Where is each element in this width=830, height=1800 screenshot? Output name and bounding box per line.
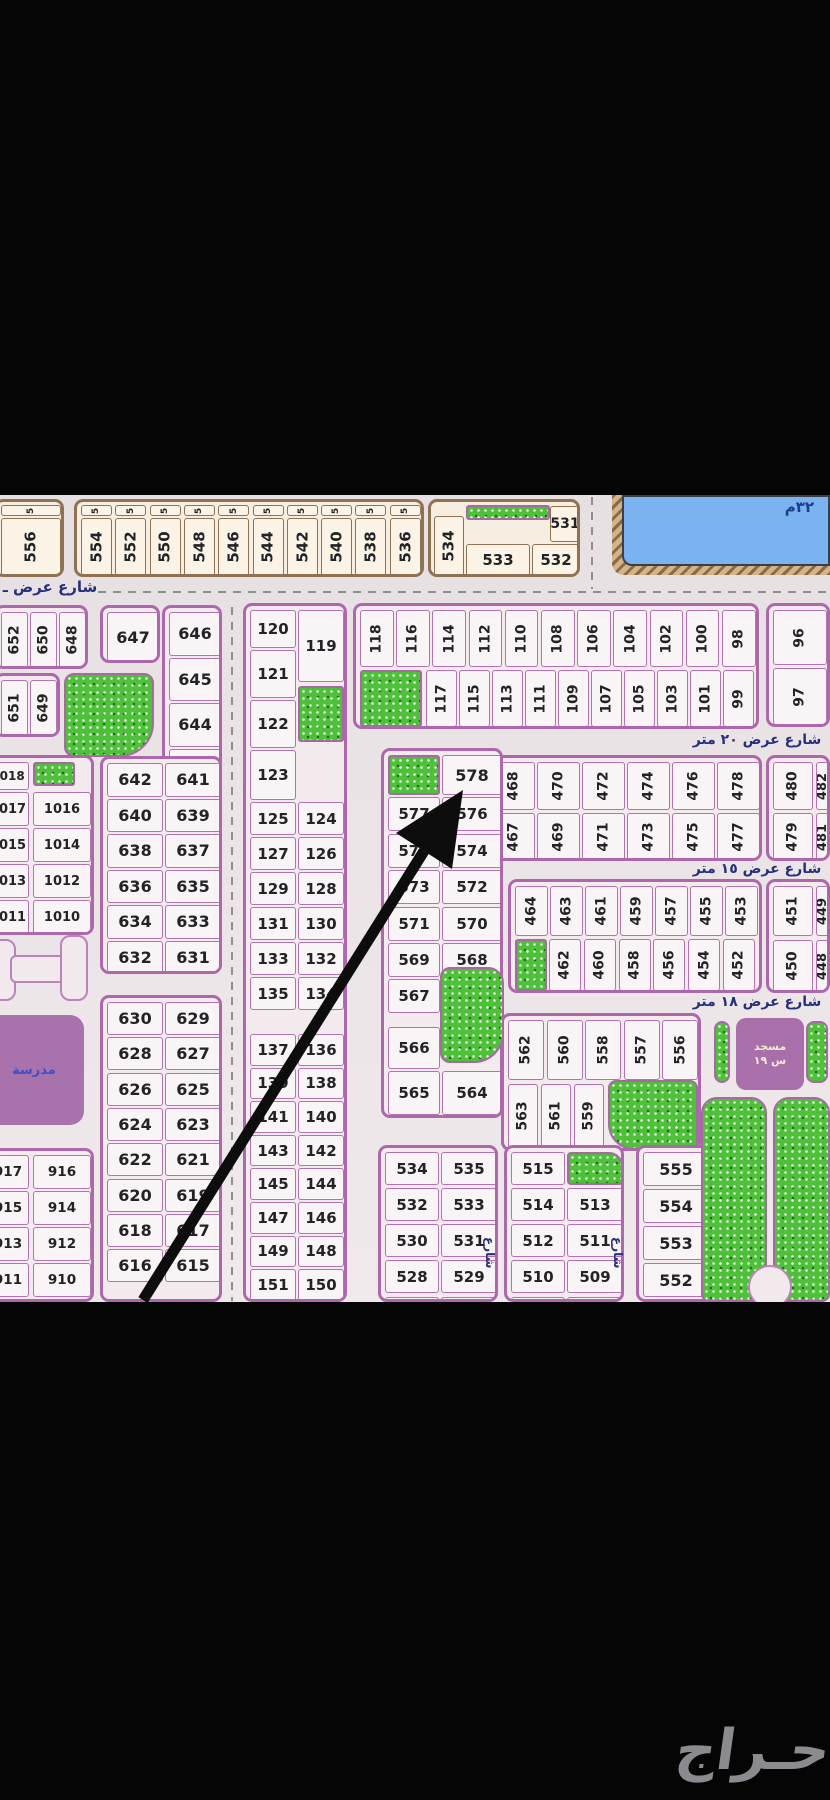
plot-129: 129 (250, 872, 296, 905)
plot-127: 127 (250, 837, 296, 870)
plot-536: 536 (390, 518, 421, 576)
plot-550: 550 (150, 518, 181, 576)
plot-112: 112 (469, 610, 503, 667)
block-1010-1018: 101810171016101510141013101210111010 (0, 755, 94, 935)
plot-99: 99 (723, 670, 754, 727)
block-615-630: 6306296286276266256246236226216206196186… (100, 995, 222, 1302)
plot-5: 5 (150, 505, 181, 516)
plot-cell (441, 1297, 497, 1302)
plot-515: 515 (511, 1152, 565, 1185)
plot-455: 455 (690, 886, 723, 936)
block-556-top: 5556 (0, 499, 64, 577)
plot-531: 531 (550, 506, 580, 542)
block-647: 647 (100, 605, 160, 663)
plot-642: 642 (107, 763, 163, 797)
plot-148: 148 (298, 1236, 344, 1268)
plot-136: 136 (298, 1034, 344, 1066)
plot-147: 147 (250, 1202, 296, 1234)
plot-560: 560 (547, 1020, 583, 1080)
plot-111: 111 (525, 670, 556, 727)
street-label-20m: شارع عرض ٢٠ متر (686, 732, 828, 748)
plot-555: 555 (643, 1152, 709, 1186)
plot-623: 623 (165, 1108, 221, 1141)
plot-116: 116 (396, 610, 430, 667)
plot-558: 558 (585, 1020, 621, 1080)
street-label-18m: شارع عرض ١٨ متر (686, 994, 828, 1010)
plot-632: 632 (107, 941, 163, 975)
plot-645: 645 (169, 658, 221, 702)
plot-617: 617 (165, 1214, 221, 1247)
plot-106: 106 (577, 610, 611, 667)
plot-133: 133 (250, 942, 296, 975)
plot-149: 149 (250, 1236, 296, 1268)
plot-115: 115 (459, 670, 490, 727)
plot-650: 650 (30, 612, 57, 668)
plot-482: 482 (816, 762, 830, 810)
plot-5: 5 (253, 505, 284, 516)
plot-619: 619 (165, 1179, 221, 1212)
plot-533: 533 (466, 544, 530, 576)
plot-915: 915 (0, 1191, 29, 1225)
plot-114: 114 (432, 610, 466, 667)
mosque: مسجدس ١٩ (736, 1018, 804, 1090)
plot-631: 631 (165, 941, 221, 975)
plot-618: 618 (107, 1214, 163, 1247)
plot-534: 534 (385, 1152, 439, 1185)
mosque-sub-label: س ١٩ (754, 1055, 786, 1067)
plot-1017: 1017 (0, 792, 29, 826)
plot-514: 514 (511, 1188, 565, 1221)
plot-100: 100 (686, 610, 720, 667)
plot-470: 470 (537, 762, 580, 810)
plot-5: 5 (115, 505, 146, 516)
plot-5: 5 (390, 505, 421, 516)
plot-96: 96 (773, 610, 827, 665)
screenshot-root: ٣٢م 555655555555555545525505485465445425… (0, 0, 830, 1800)
plot-137: 137 (250, 1034, 296, 1066)
plot-557: 557 (624, 1020, 660, 1080)
plot-1015: 1015 (0, 828, 29, 862)
block-531-534: 534531533532 (428, 499, 580, 577)
plot-616: 616 (107, 1249, 163, 1282)
park (515, 939, 547, 991)
plot-629: 629 (165, 1002, 221, 1035)
plot-110: 110 (505, 610, 539, 667)
plot-459: 459 (620, 886, 653, 936)
plot-144: 144 (298, 1168, 344, 1200)
plot-530: 530 (385, 1224, 439, 1257)
plot-98: 98 (722, 610, 756, 667)
plot-97: 97 (773, 668, 827, 725)
plot-1014: 1014 (33, 828, 91, 862)
lake-label: ٣٢م (785, 498, 814, 516)
plot-123: 123 (250, 750, 296, 800)
plot-463: 463 (550, 886, 583, 936)
plot-cell (385, 1297, 439, 1302)
plot-125: 125 (250, 802, 296, 835)
plot-120: 120 (250, 610, 296, 648)
plot-575: 575 (388, 834, 440, 868)
plot-150: 150 (298, 1269, 344, 1301)
plot-5: 5 (321, 505, 352, 516)
plot-562: 562 (508, 1020, 544, 1080)
block-452-464: 464463461459457455453462460458456454452 (508, 879, 762, 993)
plot-138: 138 (298, 1068, 344, 1100)
park (33, 762, 75, 786)
plot-630: 630 (107, 1002, 163, 1035)
plot-124: 124 (298, 802, 344, 835)
plot-567: 567 (388, 979, 440, 1013)
block-536-554: 5555555555554552550548546544542540538536 (74, 499, 424, 577)
plot-134: 134 (298, 977, 344, 1010)
plot-628: 628 (107, 1037, 163, 1070)
plot-117: 117 (426, 670, 457, 727)
plot-464: 464 (515, 886, 548, 936)
block-649-651: 651649 (0, 673, 60, 737)
plot-633: 633 (165, 905, 221, 939)
plot-118: 118 (360, 610, 394, 667)
plot-126: 126 (298, 837, 344, 870)
plot-651: 651 (1, 680, 28, 736)
plot-479: 479 (773, 813, 813, 861)
plot-620: 620 (107, 1179, 163, 1212)
plot-119: 119 (298, 610, 344, 682)
plot-121: 121 (250, 650, 296, 698)
park-578-mid (440, 967, 504, 1063)
plot-566: 566 (388, 1027, 440, 1069)
mosque-label: مسجد (754, 1041, 786, 1053)
plot-130: 130 (298, 907, 344, 940)
plot-624: 624 (107, 1108, 163, 1141)
plot-469: 469 (537, 813, 580, 861)
plot-5: 5 (81, 505, 112, 516)
block-564-578: 5785675665775765755745735725715705695685… (381, 748, 503, 1118)
plot-448: 448 (816, 940, 830, 992)
plot-104: 104 (613, 610, 647, 667)
plot-1016: 1016 (33, 792, 91, 826)
plot-532: 532 (385, 1188, 439, 1221)
plot-622: 622 (107, 1143, 163, 1176)
plot-471: 471 (582, 813, 625, 861)
plot-145: 145 (250, 1168, 296, 1200)
block-96-118: 1181161141121101081061041021009811711511… (353, 603, 759, 729)
plot-561: 561 (541, 1084, 571, 1148)
plot-621: 621 (165, 1143, 221, 1176)
plot-513: 513 (567, 1188, 623, 1221)
plot-578: 578 (442, 755, 502, 795)
school-label: مدرسة (12, 1063, 56, 1078)
street-label-15m: شارع عرض ١٥ متر (686, 861, 828, 877)
plot-102: 102 (650, 610, 684, 667)
plot-546: 546 (218, 518, 249, 576)
plot-151: 151 (250, 1269, 296, 1301)
plot-552: 552 (115, 518, 146, 576)
block-631-642: 642641640639638637636635634633632631 (100, 756, 222, 974)
plot-554: 554 (81, 518, 112, 576)
plot-131: 131 (250, 907, 296, 940)
plot-626: 626 (107, 1073, 163, 1106)
plot-450: 450 (773, 940, 813, 992)
plot-556: 556 (1, 518, 61, 576)
street-label-v1: شارع (483, 1237, 497, 1268)
plot-109: 109 (558, 670, 589, 727)
plot-548: 548 (184, 518, 215, 576)
park (388, 755, 440, 795)
plot-916: 916 (33, 1155, 91, 1189)
plot-556: 556 (662, 1020, 698, 1080)
plot-564: 564 (442, 1071, 502, 1115)
park (360, 670, 422, 727)
plot-462: 462 (549, 939, 581, 991)
block-648-652: 652650648 (0, 605, 88, 669)
plot-914: 914 (33, 1191, 91, 1225)
park (466, 505, 550, 520)
plot-534: 534 (434, 516, 464, 576)
plot-476: 476 (672, 762, 715, 810)
plot-474: 474 (627, 762, 670, 810)
school: مدرسة (0, 1015, 84, 1125)
plot-141: 141 (250, 1101, 296, 1133)
plot-472: 472 (582, 762, 625, 810)
plot-1012: 1012 (33, 864, 91, 898)
plot-540: 540 (321, 518, 352, 576)
plot-473: 473 (627, 813, 670, 861)
plot-577: 577 (388, 797, 440, 831)
plot-122: 122 (250, 700, 296, 748)
plot-510: 510 (511, 1260, 565, 1293)
plot-103: 103 (657, 670, 688, 727)
plot-615: 615 (165, 1249, 221, 1282)
plot-627: 627 (165, 1037, 221, 1070)
park (567, 1152, 623, 1185)
plot-132: 132 (298, 942, 344, 975)
plot-481: 481 (816, 813, 830, 861)
plot-480: 480 (773, 762, 813, 810)
plot-457: 457 (655, 886, 688, 936)
plot-911: 911 (0, 1263, 29, 1297)
plot-576: 576 (442, 797, 502, 831)
plot-451: 451 (773, 886, 813, 936)
plot-142: 142 (298, 1135, 344, 1167)
plot-113: 113 (492, 670, 523, 727)
plot-538: 538 (355, 518, 386, 576)
plot-552: 552 (643, 1263, 709, 1297)
plot-108: 108 (541, 610, 575, 667)
plot-648: 648 (59, 612, 86, 668)
plot-563: 563 (508, 1084, 538, 1148)
plot-574: 574 (442, 834, 502, 868)
plot-559: 559 (574, 1084, 604, 1148)
plot-128: 128 (298, 872, 344, 905)
plot-1010: 1010 (33, 900, 91, 934)
plot-512: 512 (511, 1224, 565, 1257)
plot-646: 646 (169, 612, 221, 656)
plot-637: 637 (165, 834, 221, 868)
plot-5: 5 (1, 505, 61, 516)
plot-458: 458 (619, 939, 651, 991)
plot-565: 565 (388, 1071, 440, 1115)
lake-water: ٣٢م (622, 495, 830, 566)
street-label-v2: شارع (611, 1237, 625, 1268)
plot-634: 634 (107, 905, 163, 939)
plot-5: 5 (184, 505, 215, 516)
road-circle (748, 1265, 792, 1302)
plot-453: 453 (725, 886, 758, 936)
park-mosque-right (806, 1021, 828, 1083)
block-556-563: 562560558557556563561559 (501, 1013, 701, 1151)
plot-477: 477 (717, 813, 760, 861)
plot-647: 647 (107, 612, 159, 662)
plot-1011: 1011 (0, 900, 29, 934)
plot-101: 101 (690, 670, 721, 727)
block-96-97: 9697 (766, 603, 830, 727)
block-450-451: 451450449448 (766, 879, 830, 993)
park-mosque-left (714, 1021, 730, 1083)
block-509-515: 515514513512511510509 (504, 1145, 624, 1302)
plot-570: 570 (442, 907, 502, 941)
plot-139: 139 (250, 1068, 296, 1100)
plot-461: 461 (585, 886, 618, 936)
plot-652: 652 (1, 612, 28, 668)
plot-146: 146 (298, 1202, 344, 1234)
block-119-151: 1201191211221231251241271261291281311301… (243, 603, 347, 1302)
plot-107: 107 (591, 670, 622, 727)
plot-532: 532 (532, 544, 580, 576)
plot-639: 639 (165, 799, 221, 833)
plot-map: ٣٢م 555655555555555545525505485465445425… (0, 495, 830, 1302)
plot-641: 641 (165, 763, 221, 797)
plot-913: 913 (0, 1227, 29, 1261)
plot-636: 636 (107, 870, 163, 904)
plot-635: 635 (165, 870, 221, 904)
plot-649: 649 (30, 680, 57, 736)
plot-572: 572 (442, 870, 502, 904)
plot-554: 554 (643, 1189, 709, 1223)
plot-5: 5 (355, 505, 386, 516)
plot-449: 449 (816, 886, 830, 936)
plot-460: 460 (584, 939, 616, 991)
park-left (64, 673, 154, 757)
plot-135: 135 (250, 977, 296, 1010)
plot-910: 910 (33, 1263, 91, 1297)
plot-638: 638 (107, 834, 163, 868)
plot-912: 912 (33, 1227, 91, 1261)
road-shape-3 (60, 935, 88, 1001)
plot-542: 542 (287, 518, 318, 576)
plot-1018: 1018 (0, 762, 29, 790)
block-910-917: 917916915914913912911910 (0, 1148, 94, 1302)
street-label-top: شارع عرض ـ (2, 578, 98, 596)
park (608, 1080, 698, 1150)
park (298, 686, 344, 742)
lake: ٣٢م (612, 495, 830, 575)
plot-452: 452 (723, 939, 755, 991)
plot-573: 573 (388, 870, 440, 904)
plot-105: 105 (624, 670, 655, 727)
plot-cell (567, 1297, 623, 1302)
plot-5: 5 (287, 505, 318, 516)
plot-535: 535 (441, 1152, 497, 1185)
block-528-535: 534535532533530531528529 (378, 1145, 498, 1302)
plot-553: 553 (643, 1226, 709, 1260)
plot-1013: 1013 (0, 864, 29, 898)
plot-644: 644 (169, 703, 221, 747)
block-479-480: 480479482481 (766, 755, 830, 861)
plot-544: 544 (253, 518, 284, 576)
plot-640: 640 (107, 799, 163, 833)
haraj-watermark: حـراج (580, 1718, 830, 1783)
plot-cell (511, 1297, 565, 1302)
plot-456: 456 (653, 939, 685, 991)
plot-569: 569 (388, 943, 440, 977)
plot-533: 533 (441, 1188, 497, 1221)
plot-5: 5 (218, 505, 249, 516)
plot-140: 140 (298, 1101, 344, 1133)
plot-571: 571 (388, 907, 440, 941)
plot-528: 528 (385, 1260, 439, 1293)
plot-917: 917 (0, 1155, 29, 1189)
plot-143: 143 (250, 1135, 296, 1167)
plot-625: 625 (165, 1073, 221, 1106)
plot-454: 454 (688, 939, 720, 991)
plot-475: 475 (672, 813, 715, 861)
plot-478: 478 (717, 762, 760, 810)
